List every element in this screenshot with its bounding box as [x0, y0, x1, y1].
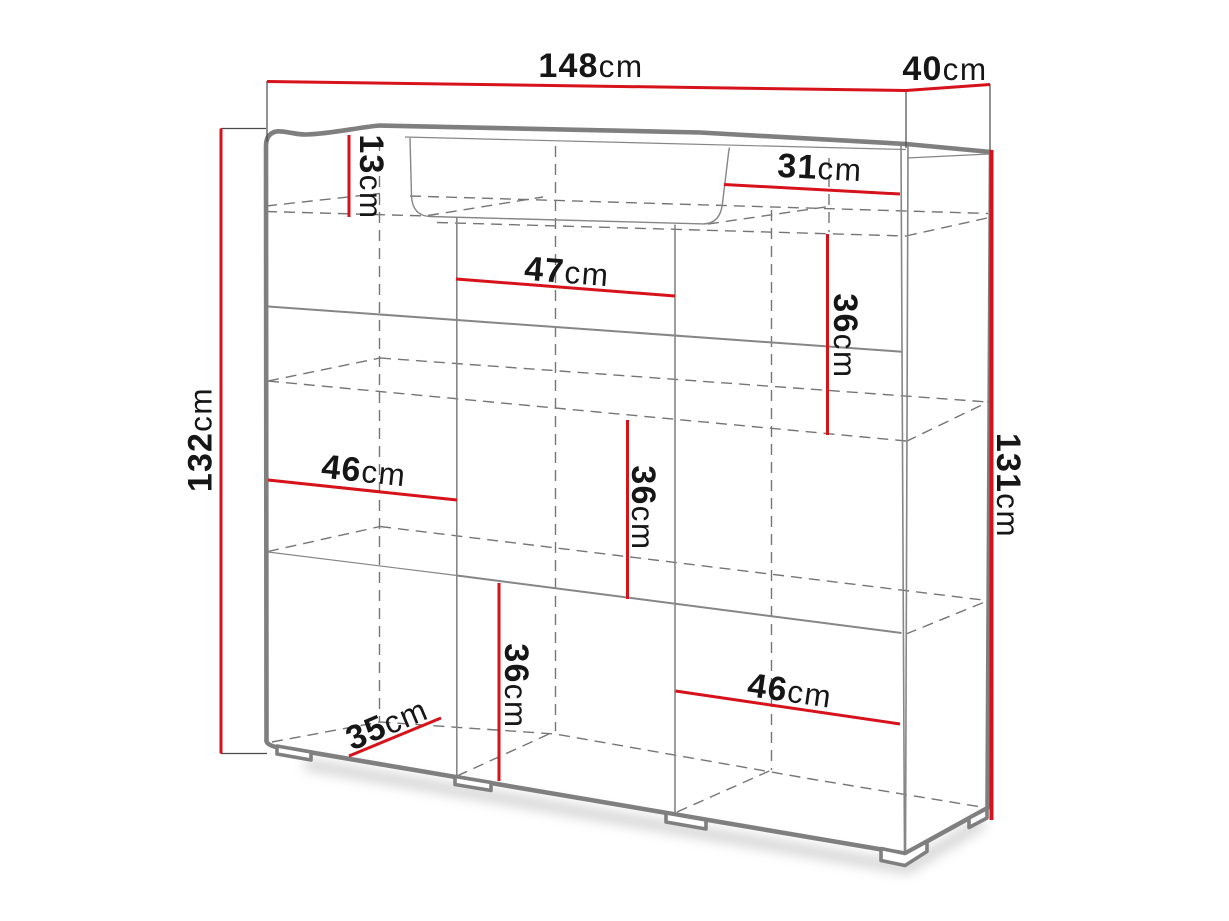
svg-text:13cm: 13cm [352, 134, 390, 219]
svg-text:47cm: 47cm [523, 250, 611, 295]
svg-text:36cm: 36cm [826, 293, 864, 378]
svg-text:36cm: 36cm [624, 465, 662, 550]
svg-text:132cm: 132cm [182, 387, 220, 492]
svg-text:31cm: 31cm [776, 147, 863, 189]
svg-text:36cm: 36cm [497, 643, 535, 728]
svg-text:131cm: 131cm [989, 433, 1027, 538]
svg-text:40cm: 40cm [902, 50, 987, 88]
svg-text:148cm: 148cm [538, 47, 643, 85]
